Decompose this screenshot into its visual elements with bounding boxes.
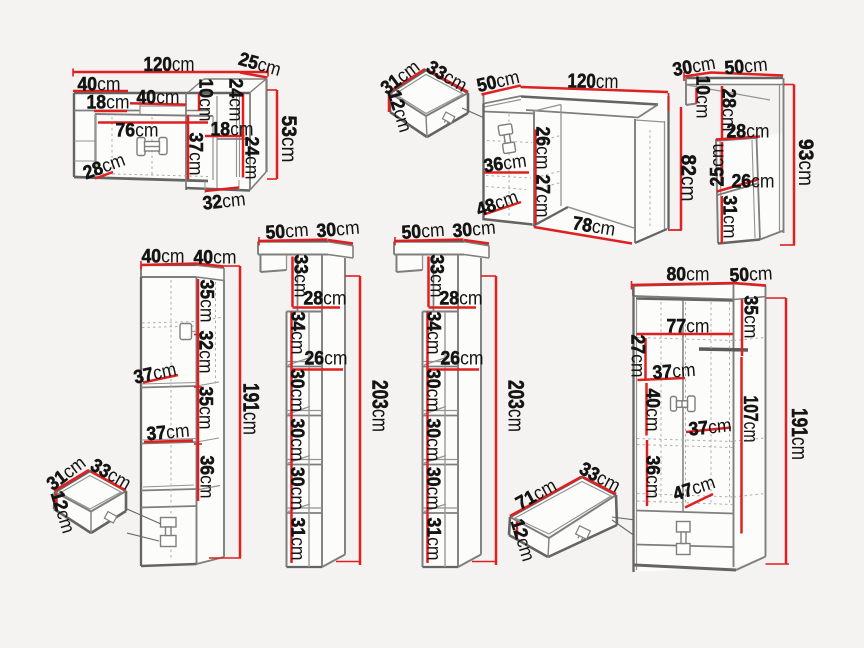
svg-text:26cm: 26cm <box>441 349 484 370</box>
svg-text:32cm: 32cm <box>195 331 216 374</box>
svg-text:93cm: 93cm <box>794 139 817 186</box>
svg-text:203cm: 203cm <box>504 380 529 432</box>
svg-text:50cm: 50cm <box>401 220 445 244</box>
svg-text:18cm: 18cm <box>87 93 130 114</box>
svg-text:30cm: 30cm <box>316 218 361 243</box>
svg-text:26cm: 26cm <box>732 172 775 193</box>
svg-text:107cm: 107cm <box>739 396 761 443</box>
svg-text:76cm: 76cm <box>116 121 159 142</box>
svg-text:37cm: 37cm <box>185 133 206 176</box>
svg-text:80cm: 80cm <box>667 265 710 286</box>
svg-text:40cm: 40cm <box>142 247 185 268</box>
svg-text:25cm: 25cm <box>708 144 729 187</box>
svg-text:50cm: 50cm <box>724 55 769 80</box>
svg-text:27cm: 27cm <box>627 335 648 378</box>
svg-text:50cm: 50cm <box>265 220 309 244</box>
svg-text:82cm: 82cm <box>676 155 699 202</box>
svg-text:37cm: 37cm <box>146 421 191 446</box>
svg-text:77cm: 77cm <box>667 317 710 338</box>
svg-text:30cm: 30cm <box>286 369 307 412</box>
svg-text:24cm: 24cm <box>241 137 262 180</box>
svg-text:27cm: 27cm <box>532 175 553 218</box>
svg-text:35cm: 35cm <box>740 296 761 339</box>
svg-text:30cm: 30cm <box>422 419 443 462</box>
svg-text:24cm: 24cm <box>225 79 246 122</box>
svg-text:120cm: 120cm <box>567 70 618 93</box>
svg-text:30cm: 30cm <box>286 467 307 510</box>
svg-text:53cm: 53cm <box>277 116 300 163</box>
svg-text:40cm: 40cm <box>137 88 180 109</box>
svg-text:26cm: 26cm <box>532 127 553 170</box>
svg-text:191cm: 191cm <box>239 383 264 435</box>
svg-text:35cm: 35cm <box>196 280 217 323</box>
svg-text:40cm: 40cm <box>642 389 663 432</box>
svg-text:30cm: 30cm <box>422 467 443 510</box>
svg-text:36cm: 36cm <box>196 456 217 499</box>
svg-text:120cm: 120cm <box>144 54 195 76</box>
svg-text:37cm: 37cm <box>688 415 733 440</box>
svg-text:30cm: 30cm <box>452 218 497 243</box>
svg-text:28cm: 28cm <box>304 289 347 310</box>
svg-text:191cm: 191cm <box>787 408 812 460</box>
svg-text:36cm: 36cm <box>642 456 663 499</box>
svg-text:31cm: 31cm <box>719 196 740 239</box>
svg-text:32cm: 32cm <box>202 189 247 214</box>
svg-text:26cm: 26cm <box>305 349 348 370</box>
svg-text:40cm: 40cm <box>194 248 237 269</box>
svg-text:31cm: 31cm <box>287 518 308 561</box>
svg-text:28cm: 28cm <box>727 122 770 143</box>
svg-text:10cm: 10cm <box>692 76 713 119</box>
svg-text:50cm: 50cm <box>729 263 773 286</box>
svg-text:31cm: 31cm <box>423 518 444 561</box>
svg-text:10cm: 10cm <box>195 79 216 122</box>
svg-text:35cm: 35cm <box>195 387 216 430</box>
svg-text:203cm: 203cm <box>368 380 393 432</box>
svg-text:37cm: 37cm <box>652 360 696 384</box>
svg-text:30cm: 30cm <box>286 419 307 462</box>
svg-text:30cm: 30cm <box>422 369 443 412</box>
svg-text:28cm: 28cm <box>440 289 483 310</box>
